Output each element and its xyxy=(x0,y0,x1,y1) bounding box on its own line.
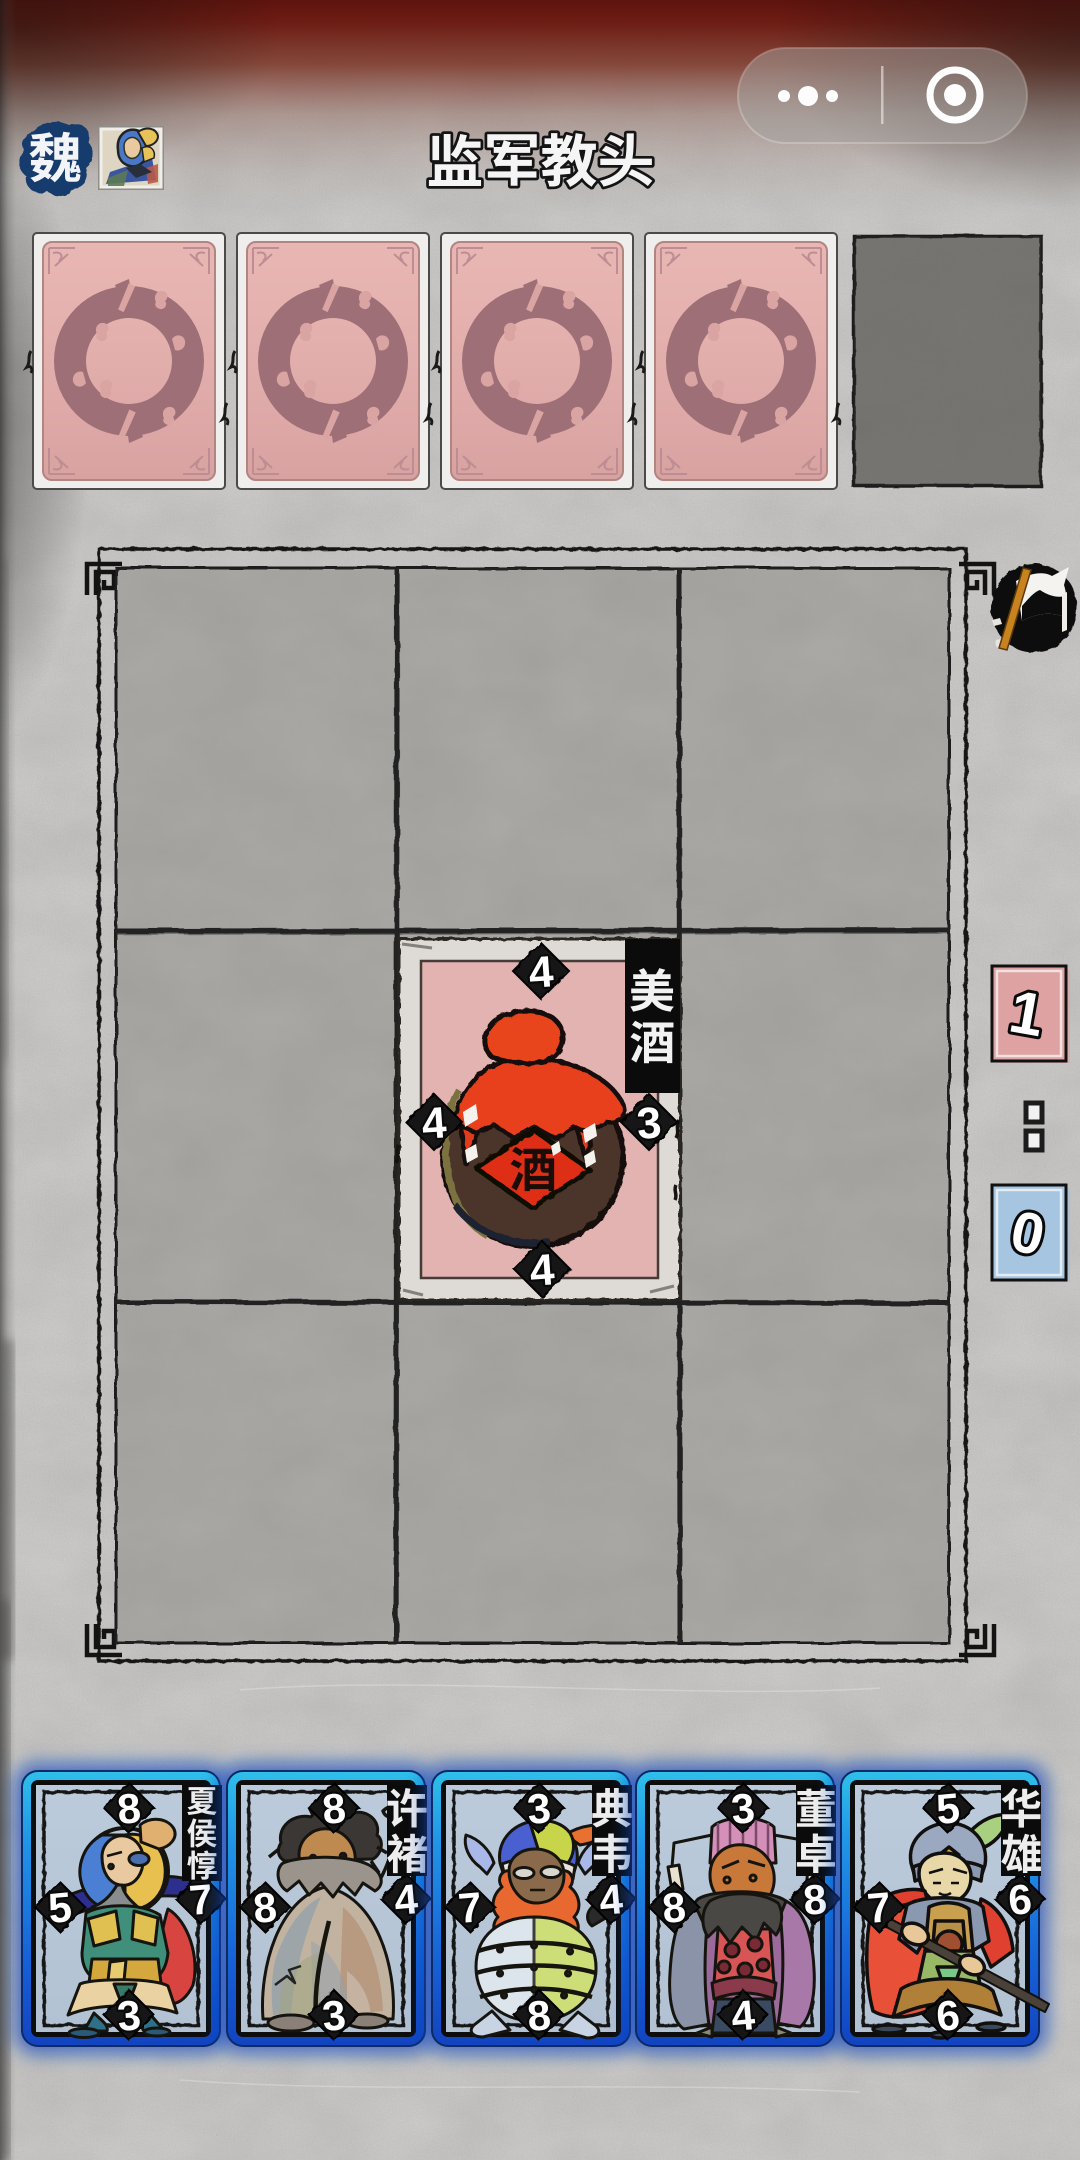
svg-text:3: 3 xyxy=(525,1784,552,1833)
svg-text:8: 8 xyxy=(115,1784,142,1833)
svg-text:8: 8 xyxy=(251,1883,278,1932)
svg-text:4: 4 xyxy=(527,947,555,998)
svg-text:8: 8 xyxy=(525,1991,552,2040)
svg-text:4: 4 xyxy=(392,1875,420,1924)
svg-text:7: 7 xyxy=(865,1883,892,1932)
svg-text:4: 4 xyxy=(528,1245,556,1296)
svg-text:4: 4 xyxy=(597,1875,625,1924)
svg-text:6: 6 xyxy=(1006,1875,1033,1924)
svg-text:3: 3 xyxy=(729,1784,756,1833)
svg-text:3: 3 xyxy=(320,1991,347,2040)
svg-text:6: 6 xyxy=(934,1991,961,2040)
svg-text:4: 4 xyxy=(729,1991,757,2040)
svg-text:8: 8 xyxy=(660,1883,687,1932)
svg-text:7: 7 xyxy=(187,1875,214,1924)
svg-text:5: 5 xyxy=(46,1883,73,1932)
svg-text:5: 5 xyxy=(934,1784,961,1833)
svg-text:3: 3 xyxy=(635,1098,663,1149)
svg-text:8: 8 xyxy=(801,1875,828,1924)
svg-text:3: 3 xyxy=(115,1991,142,2040)
svg-text:7: 7 xyxy=(456,1883,483,1932)
svg-text:4: 4 xyxy=(420,1098,448,1149)
svg-text:8: 8 xyxy=(320,1784,347,1833)
